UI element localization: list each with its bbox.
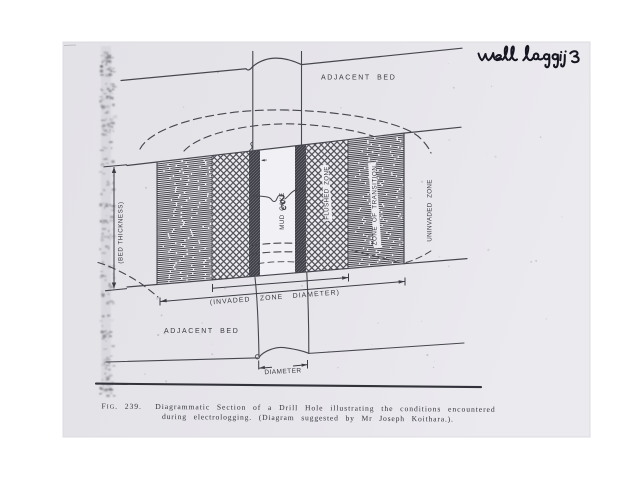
svg-text:UNINVADED ZONE: UNINVADED ZONE (427, 179, 434, 242)
svg-text:ZONE OF TRANSITION: ZONE OF TRANSITION (372, 166, 379, 246)
svg-text:(BED THICKNESS): (BED THICKNESS) (118, 201, 125, 263)
svg-text:FLUSHED ZONE: FLUSHED ZONE (324, 166, 331, 220)
svg-text:ADJACENT BED: ADJACENT BED (164, 328, 239, 335)
svg-text:ADJACENT BED: ADJACENT BED (321, 75, 396, 82)
svg-text:MUD CAKE: MUD CAKE (279, 192, 286, 229)
